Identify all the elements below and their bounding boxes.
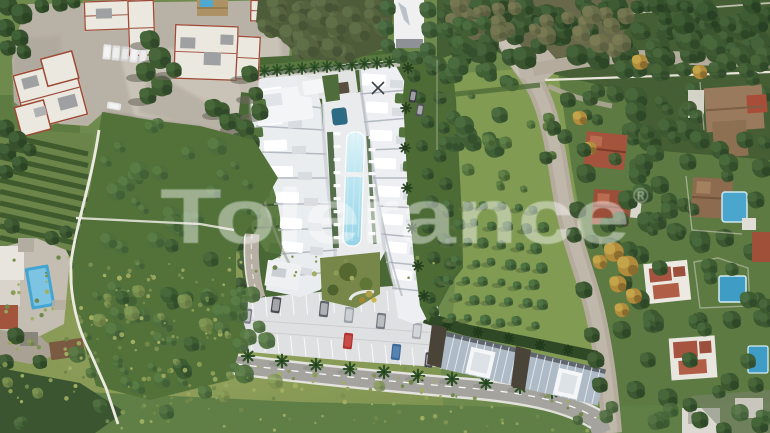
svg-text:Tolerance: Tolerance xyxy=(160,172,630,260)
svg-text:®: ® xyxy=(633,185,649,208)
